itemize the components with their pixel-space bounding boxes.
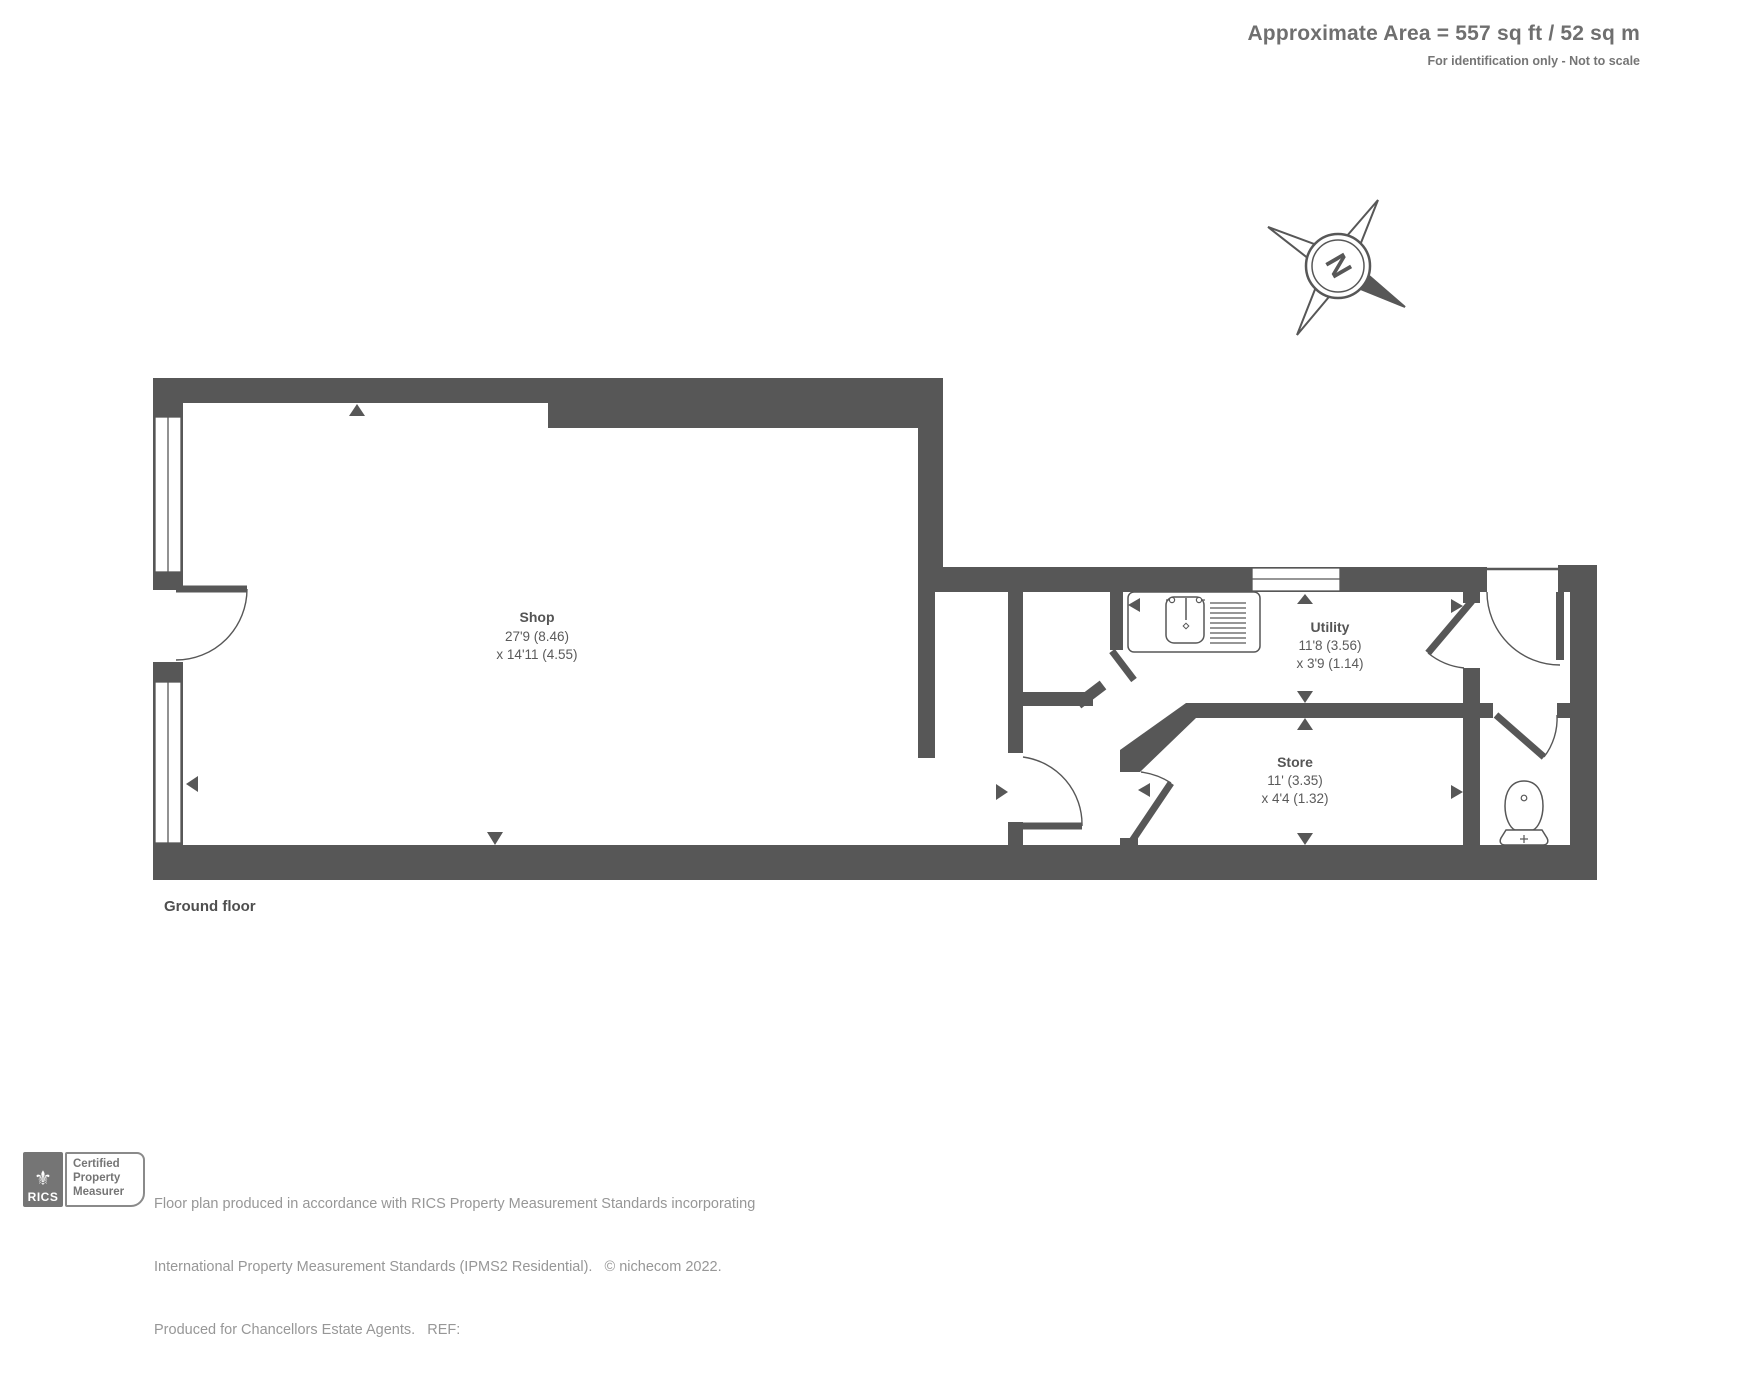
store-label: Store (1277, 754, 1313, 770)
disclaimer-line-2: International Property Measurement Stand… (154, 1257, 755, 1278)
walls (153, 378, 1597, 880)
floor-label: Ground floor (164, 898, 256, 915)
sink-tap-left (1169, 597, 1174, 602)
wall-bottom (153, 845, 1597, 880)
entrance-door-leaf (1556, 592, 1564, 660)
arrow-shop-right (996, 784, 1008, 800)
rics-logo: ⚜ RICS (23, 1152, 63, 1207)
utility-dim1: 11'8 (3.56) (1298, 638, 1361, 653)
sink-tap-right (1196, 597, 1201, 602)
wall-top-right-step (548, 378, 943, 428)
disclaimer-text: Floor plan produced in accordance with R… (154, 1152, 755, 1383)
utility-dim2: x 3'9 (1.14) (1296, 656, 1363, 671)
utility-label: Utility (1311, 619, 1350, 635)
inner-door-jamb-angled (1078, 685, 1103, 704)
wall-inner-v1 (1008, 592, 1023, 753)
compass-rose: N (1268, 200, 1405, 335)
kitchen-sink-unit (1128, 592, 1260, 652)
badge-line-2: Property (73, 1171, 141, 1185)
disclaimer-line-3: Produced for Chancellors Estate Agents. … (154, 1320, 755, 1341)
wall-shop-right-upper (918, 428, 943, 569)
arrow-store-down (1297, 833, 1313, 845)
rics-lion-icon: ⚜ (34, 1168, 52, 1190)
entrance-door-arc (1487, 592, 1560, 665)
arrow-store-right (1451, 785, 1463, 799)
arrow-shop-down (487, 832, 503, 845)
floorplan-svg: N (0, 0, 1755, 1241)
wall-diagonal-store (1120, 703, 1196, 772)
wall-inner-v2 (1110, 592, 1123, 650)
inner-door-leaf (1112, 651, 1134, 680)
toilet-flush-dot (1521, 795, 1527, 801)
wc-door-arc (1544, 715, 1557, 757)
arrow-utility-up (1297, 594, 1313, 604)
arrow-shop-left (186, 776, 198, 792)
lobby-door-arc (1023, 757, 1082, 826)
wall-right-corner (1558, 565, 1597, 592)
utility-door-arc (1428, 653, 1464, 668)
store-dim1: 11' (3.35) (1267, 773, 1323, 788)
badge-line-3: Measurer (73, 1185, 141, 1199)
wall-shop-right-lower (918, 592, 935, 758)
shop-dim2: x 14'11 (4.55) (496, 647, 577, 662)
wall-right-outer (1570, 565, 1597, 880)
toilet (1500, 781, 1548, 845)
certified-property-measurer-badge: Certified Property Measurer (65, 1152, 145, 1207)
arrow-store-left (1138, 783, 1150, 797)
arrow-shop-up (349, 404, 365, 416)
footer: ⚜ RICS Certified Property Measurer Floor… (23, 1152, 755, 1383)
shop-label: Shop (520, 609, 555, 625)
toilet-bowl (1505, 781, 1543, 830)
arrow-store-up (1297, 718, 1313, 730)
arrow-utility-down (1297, 691, 1313, 703)
wall-v3-lower (1463, 668, 1480, 845)
store-door-leaf (1132, 783, 1171, 841)
store-dim2: x 4'4 (1.32) (1261, 791, 1328, 806)
utility-door-leaf (1428, 601, 1472, 653)
shop-entrance-door-arc (176, 589, 247, 660)
wall-middle-h2 (1190, 703, 1493, 718)
sink-basin (1166, 597, 1204, 643)
shop-door-opening (151, 590, 185, 662)
rics-wordmark: RICS (28, 1190, 59, 1204)
store-door-arc (1141, 772, 1171, 783)
wc-door-leaf (1496, 715, 1544, 757)
disclaimer-line-1: Floor plan produced in accordance with R… (154, 1194, 755, 1215)
shop-dim1: 27'9 (8.46) (505, 629, 569, 644)
wall-middle-h2-right (1557, 703, 1570, 718)
badge-line-1: Certified (73, 1157, 141, 1171)
wall-corridor-top (918, 567, 1487, 592)
